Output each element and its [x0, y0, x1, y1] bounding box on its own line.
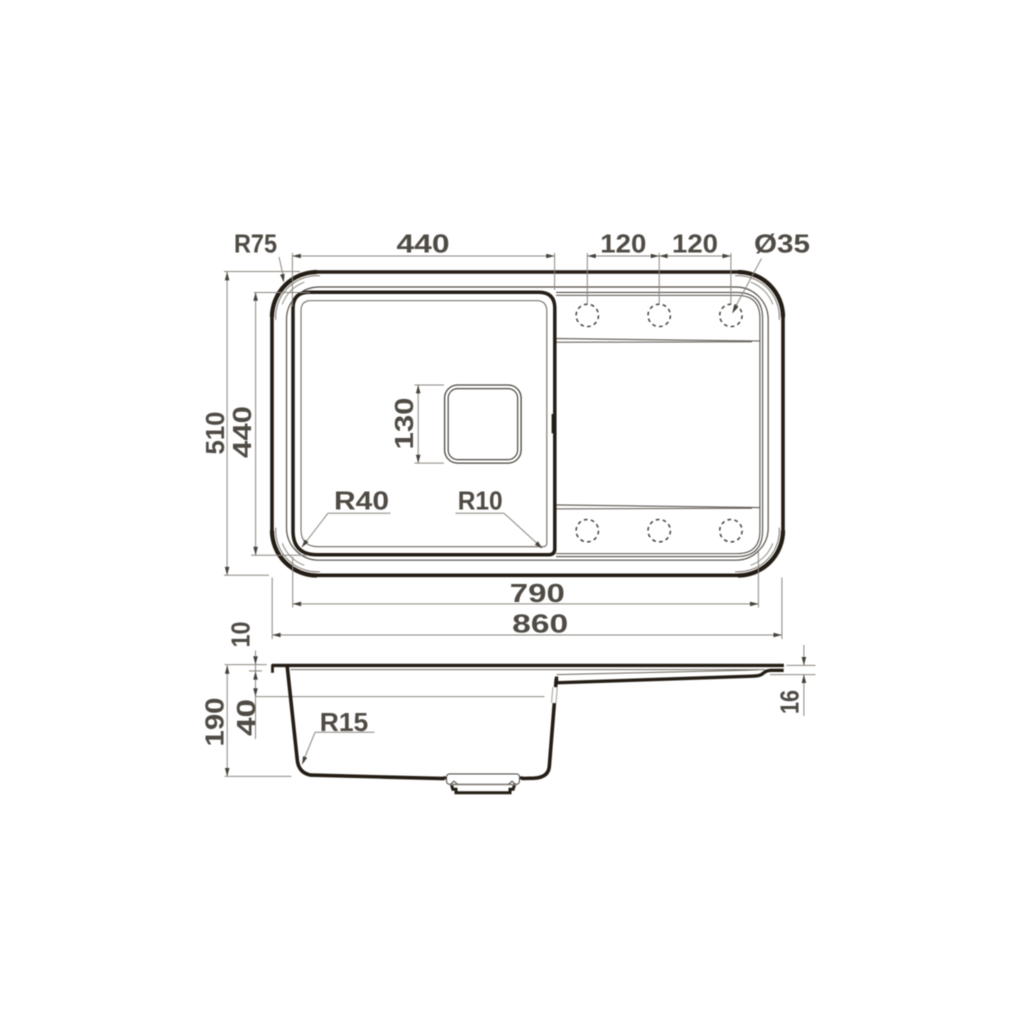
svg-text:R40: R40 — [334, 486, 389, 516]
svg-text:120: 120 — [672, 229, 718, 259]
svg-text:190: 190 — [200, 698, 230, 747]
svg-text:130: 130 — [389, 398, 419, 450]
svg-text:440: 440 — [397, 229, 450, 259]
svg-text:860: 860 — [512, 609, 568, 639]
svg-text:16: 16 — [775, 690, 805, 714]
svg-text:10: 10 — [225, 622, 255, 648]
svg-text:R10: R10 — [458, 486, 503, 516]
svg-text:440: 440 — [227, 406, 257, 458]
svg-text:120: 120 — [600, 229, 646, 259]
svg-text:510: 510 — [200, 412, 230, 455]
svg-text:40: 40 — [231, 699, 261, 736]
svg-text:Ø35: Ø35 — [754, 229, 810, 259]
svg-text:790: 790 — [510, 578, 565, 608]
svg-text:R75: R75 — [234, 229, 277, 259]
